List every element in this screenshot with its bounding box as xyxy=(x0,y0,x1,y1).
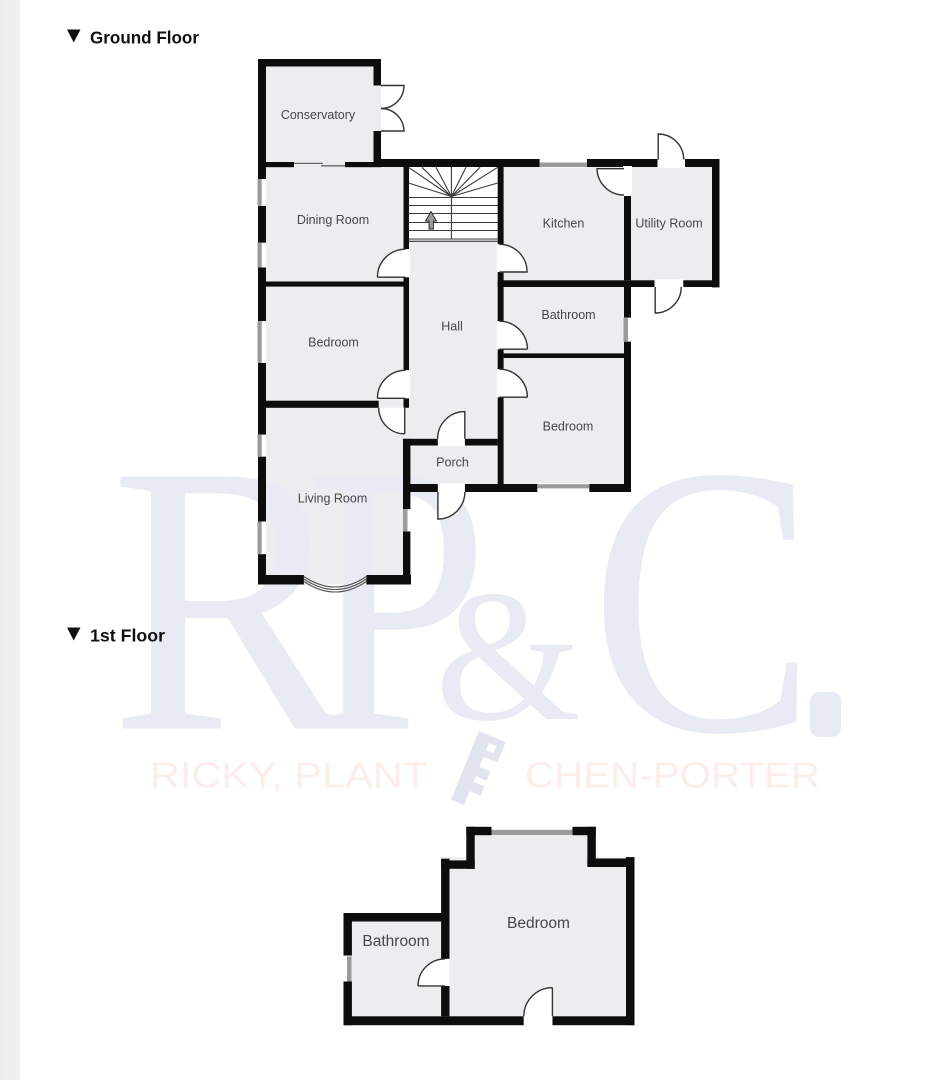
svg-text:Conservatory: Conservatory xyxy=(281,108,356,122)
svg-text:&: & xyxy=(435,551,581,760)
svg-text:Bedroom: Bedroom xyxy=(308,336,359,350)
svg-text:CHEN-PORTER: CHEN-PORTER xyxy=(525,755,820,796)
svg-text:Bathroom: Bathroom xyxy=(541,308,595,322)
svg-text:Bedroom: Bedroom xyxy=(543,420,594,434)
svg-text:Living Room: Living Room xyxy=(298,492,367,506)
svg-text:Hall: Hall xyxy=(441,320,463,334)
svg-text:Dining Room: Dining Room xyxy=(297,213,369,227)
svg-text:Porch: Porch xyxy=(436,456,469,470)
svg-text:RICKY, PLANT: RICKY, PLANT xyxy=(150,755,428,796)
svg-text:1st Floor: 1st Floor xyxy=(90,626,165,646)
svg-text:Bathroom: Bathroom xyxy=(362,933,429,950)
svg-text:Ground Floor: Ground Floor xyxy=(90,28,199,48)
svg-text:Bedroom: Bedroom xyxy=(507,915,570,932)
svg-text:Kitchen: Kitchen xyxy=(543,217,585,231)
svg-text:Utility Room: Utility Room xyxy=(635,217,702,231)
svg-text:C: C xyxy=(590,388,816,814)
